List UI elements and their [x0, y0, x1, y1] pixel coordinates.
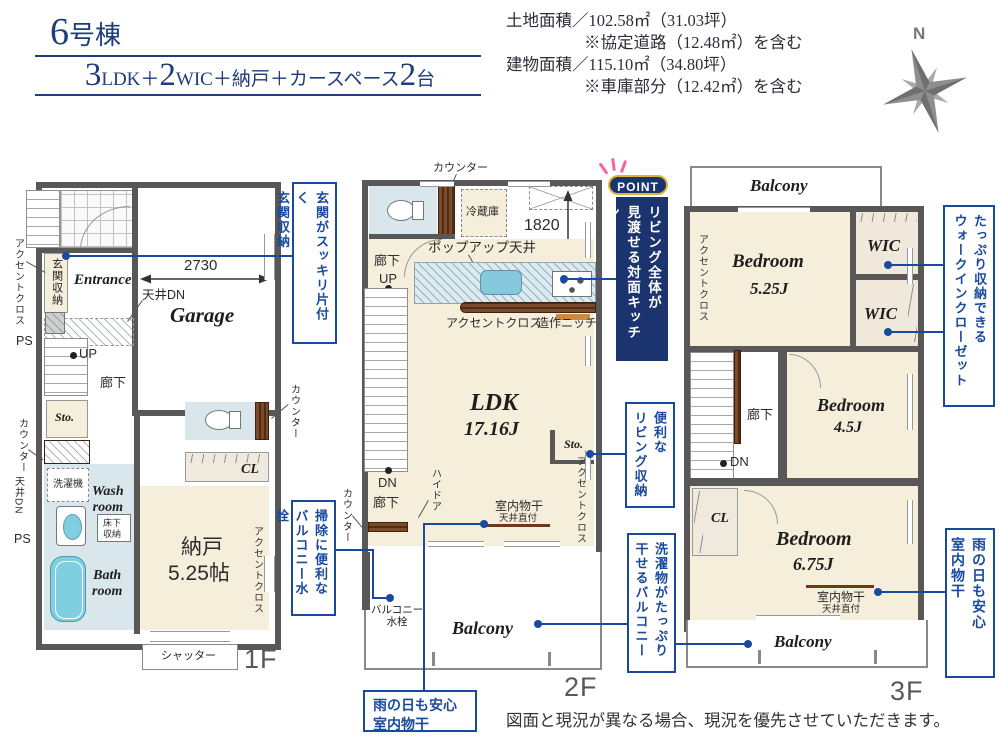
f1-counter-right-label: カウンター: [288, 384, 300, 439]
f2-ldk-size: 17.16J: [464, 418, 519, 441]
f1-shutter-opening: [150, 631, 230, 642]
f2-window: [585, 222, 591, 258]
f1-hall-label: 廊下: [100, 376, 126, 391]
compass-north-label: N: [913, 24, 925, 44]
f2-highdoor-label: ハイドア: [429, 468, 441, 512]
leader-line: [880, 591, 945, 593]
f2-window: [504, 541, 560, 547]
f2-balcony-post: [432, 652, 435, 666]
f3-balcony-post: [758, 650, 761, 664]
leader-line: [540, 623, 627, 625]
callout-point-kitchen: リビング全体が 見渡せる対面キッチン: [616, 197, 668, 361]
floorplan-sheet: 6 号棟 3 LDK＋ 2 WIC＋納戸＋カースペース 2 台 土地面積／102…: [0, 0, 1000, 750]
f3-dn-dot: [720, 460, 727, 467]
f2-stairs: [364, 288, 408, 472]
f2-kitchen-sink: [480, 270, 522, 295]
callout-living-storage: 便利な リビング収納: [625, 402, 675, 508]
leader-dot: [534, 620, 542, 628]
f1-floor-label: 1F: [244, 644, 278, 675]
plan-summary: 3 LDK＋ 2 WIC＋納戸＋カースペース 2 台: [40, 57, 480, 95]
leader-dot: [480, 520, 488, 528]
f3-wall: [690, 478, 918, 486]
leader-line: [890, 264, 943, 266]
f1-nando-size: 5.25帖: [168, 562, 230, 586]
f2-fridge-box: 冷蔵庫: [461, 189, 507, 237]
leader-line: [66, 255, 292, 257]
f3-window: [907, 500, 913, 544]
leader-line: [372, 549, 374, 599]
leader-dot: [884, 328, 892, 336]
f3-drying-bar: [806, 585, 874, 588]
f3-bedroom3-label: Bedroom: [776, 528, 852, 551]
f2-kitchen-counter: [460, 302, 596, 313]
f1-closet: CL: [185, 452, 269, 482]
f2-toilet-tank: [412, 201, 424, 220]
f1-toilet-tank: [229, 411, 241, 429]
f2-hall-bottom-label: 廊下: [373, 496, 399, 511]
plan-text-car: 台: [416, 64, 435, 91]
f1-vanity-bowl: [63, 514, 82, 540]
leader-line: [676, 643, 748, 645]
f3-stairs: [690, 352, 734, 482]
f1-ps-label-left: PS: [14, 532, 31, 546]
f2-wall: [362, 552, 370, 610]
f2-accent-cross-kitchen: アクセントクロス: [446, 317, 541, 331]
f3-wic1-hangers: [857, 213, 917, 222]
f3-closet: CL: [692, 488, 738, 556]
leader-line: [336, 549, 374, 551]
f1-entrance-label: Entrance: [74, 272, 132, 289]
f2-dn-label: DN: [378, 476, 397, 491]
point-ray-icon: [611, 158, 616, 171]
f1-ps-label-top: PS: [16, 334, 33, 348]
f2-toilet-bowl: [387, 200, 415, 221]
f1-counter: [44, 440, 90, 464]
f1-garage-wall: [132, 188, 138, 412]
f1-washer-label: 洗濯機: [53, 479, 83, 491]
f3-floor-label: 3F: [890, 676, 924, 707]
leader-dot: [884, 261, 892, 269]
leader-line: [592, 453, 625, 455]
f1-bathtub-inner: [55, 561, 83, 619]
leader-line: [890, 331, 943, 333]
f3-bedroom2-label: Bedroom: [817, 395, 885, 416]
f1-approach-steps: [26, 190, 60, 248]
f1-storage-room: Sto.: [46, 400, 88, 438]
f1-storage-label: Sto.: [55, 411, 74, 425]
f1-dim-2730-arrow: [140, 272, 270, 290]
building-area-note: ※車庫部分（12.42㎡）を含む: [584, 78, 803, 97]
f1-window: [264, 556, 275, 592]
f2-window: [420, 181, 454, 187]
f3-balcony-post: [874, 650, 877, 664]
f2-window: [508, 181, 550, 187]
f3-wall: [778, 352, 787, 478]
f2-stove: [552, 271, 592, 297]
point-badge: POINT: [608, 175, 668, 195]
f3-bedroom1-size: 5.25J: [750, 279, 788, 299]
f3-bedroom1-label: Bedroom: [732, 251, 804, 273]
f2-balcony-faucet-label: バルコニー 水栓: [371, 604, 423, 628]
callout-rain-drying-3f: 雨の日も安心 室内物干: [945, 528, 995, 678]
f2-hall-top-label: 廊下: [374, 254, 400, 269]
f1-vanity: [56, 506, 86, 546]
f1-counter-left-label: カウンター: [16, 418, 28, 473]
f1-floor-storage-label: 床下 収納: [103, 518, 121, 540]
f1-accent-cross-nando: アクセントクロス: [251, 526, 263, 614]
leader-dot: [560, 275, 568, 283]
f3-bedroom2-size: 4.5J: [834, 419, 862, 437]
f3-balcony-bottom-label: Balcony: [774, 632, 832, 652]
f1-up-label: UP: [79, 347, 97, 362]
header-rule-bottom: [35, 94, 481, 96]
f1-washroom-label: Wash room: [92, 484, 124, 516]
leader-dot: [386, 594, 394, 602]
callout-balcony-faucet: 掃除に便利な バルコニー水栓: [291, 500, 336, 616]
plan-text-wic: WIC＋納戸＋カースペース: [176, 64, 400, 91]
f2-drying-bar: [486, 524, 550, 527]
f3-wic2: WIC: [856, 280, 918, 346]
plan-count-wic: 2: [159, 57, 176, 94]
f2-ldk-label: LDK: [470, 390, 518, 418]
f2-fridge-label: 冷蔵庫: [466, 206, 499, 219]
f1-shutter-box: シャッター: [142, 644, 238, 670]
disclaimer-text: 図面と現況が異なる場合、現況を優先させていただきます。: [506, 712, 950, 731]
land-area: 土地面積／102.58㎡（31.03坪）: [506, 12, 737, 31]
f1-floor-storage: 床下 収納: [97, 514, 131, 542]
f3-closet-label: CL: [711, 511, 729, 527]
compass-icon: [872, 42, 978, 145]
f1-closet-label: CL: [241, 462, 259, 478]
plan-text-ldk: LDK＋: [101, 64, 159, 91]
point-ray-icon: [599, 162, 609, 174]
f1-accent-cross-entrance: アクセントクロス: [12, 238, 24, 326]
land-area-note: ※協定道路（12.48㎡）を含む: [584, 34, 803, 53]
leader-dot: [874, 588, 882, 596]
callout-rain-drying-2f: 雨の日も安心 室内物干: [363, 690, 477, 732]
callout-entrance-storage: 玄関がスッキリ片付く 玄関収納: [292, 182, 337, 344]
f1-genkan-storage-room: 玄関収納: [44, 253, 68, 313]
f3-dn-label: DN: [730, 455, 749, 470]
f2-dim-1820-label: 1820: [524, 217, 560, 235]
f1-up-dot: [70, 352, 77, 359]
f3-bedroom3-size: 6.75J: [793, 554, 834, 575]
f2-counter-top-label: カウンター: [433, 162, 488, 175]
f2-balcony-label: Balcony: [452, 618, 513, 639]
leader-dot: [586, 450, 594, 458]
f2-counter: [368, 522, 408, 532]
f1-nando-label: 納戸: [181, 536, 223, 560]
f2-window: [428, 541, 484, 547]
plan-count-car: 2: [400, 57, 417, 94]
building-suffix: 号棟: [69, 15, 121, 52]
f2-toilet-counter: [438, 186, 455, 236]
f1-ceiling-dn-label: 天井DN: [142, 288, 185, 302]
f3-closet-hangers: [694, 491, 703, 553]
building-area: 建物面積／115.10㎡（34.80坪）: [506, 56, 736, 75]
f2-counter-left-label: カウンター: [340, 488, 352, 543]
f1-garage-label: Garage: [170, 303, 234, 327]
f3-window: [907, 248, 913, 284]
f1-shutter-label: シャッター: [161, 650, 216, 663]
leader-line: [424, 523, 484, 525]
point-ray-icon: [620, 160, 627, 173]
f2-accent-cross-right: アクセントクロス: [574, 456, 586, 544]
leader-dot: [744, 640, 752, 648]
f2-living-storage-label: Sto.: [564, 438, 583, 452]
f3-window: [907, 374, 913, 430]
f1-genkan-storage-label: 玄関収納: [50, 258, 63, 306]
f3-accent-cross-label: アクセントクロス: [696, 234, 708, 322]
f3-stair-rail: [734, 350, 741, 444]
f1-bathroom-label: Bath room: [92, 568, 122, 600]
f2-drying-label: 室内物干: [495, 500, 543, 514]
f3-hall-label: 廊下: [747, 408, 773, 423]
f2-floor-label: 2F: [564, 672, 598, 703]
callout-laundry-balcony: 洗濯物がたっぷり 干せるバルコニー: [627, 533, 676, 673]
leader-line: [566, 278, 616, 280]
f1-ps-shaft: [45, 312, 65, 334]
f2-window: [585, 336, 591, 366]
leader-line: [423, 523, 425, 690]
plan-count-ldk: 3: [85, 57, 102, 94]
f1-toilet-room: [185, 402, 255, 440]
f1-bathtub: [50, 556, 86, 622]
callout-walk-in-closet: たっぷり収納できる ウォークインクローゼット: [943, 205, 995, 407]
f3-drying-label: 室内物干: [817, 591, 865, 605]
f3-wic1-label: WIC: [867, 236, 900, 256]
f2-toilet-room: [369, 186, 437, 234]
f1-toilet-counter: [255, 402, 269, 440]
f3-balcony-top-label: Balcony: [750, 176, 808, 196]
f2-niche-label: 造作ニッチ: [537, 317, 597, 331]
f3-wic2-label: WIC: [864, 304, 897, 324]
f2-balcony-post: [548, 652, 551, 666]
building-number: 6: [50, 10, 69, 54]
f2-pantry-box: [529, 186, 593, 210]
f1-ceiling-dn-left-label: 天井DN: [12, 476, 24, 514]
leader-dot: [62, 252, 70, 260]
f3-wic2-hangers: [908, 284, 917, 342]
f1-washer-box: 洗濯機: [47, 468, 89, 502]
building-title: 6 号棟: [50, 10, 121, 54]
f2-popup-ceiling-label: ポップアップ天井: [428, 240, 536, 256]
f2-dn-dot: [385, 467, 392, 474]
